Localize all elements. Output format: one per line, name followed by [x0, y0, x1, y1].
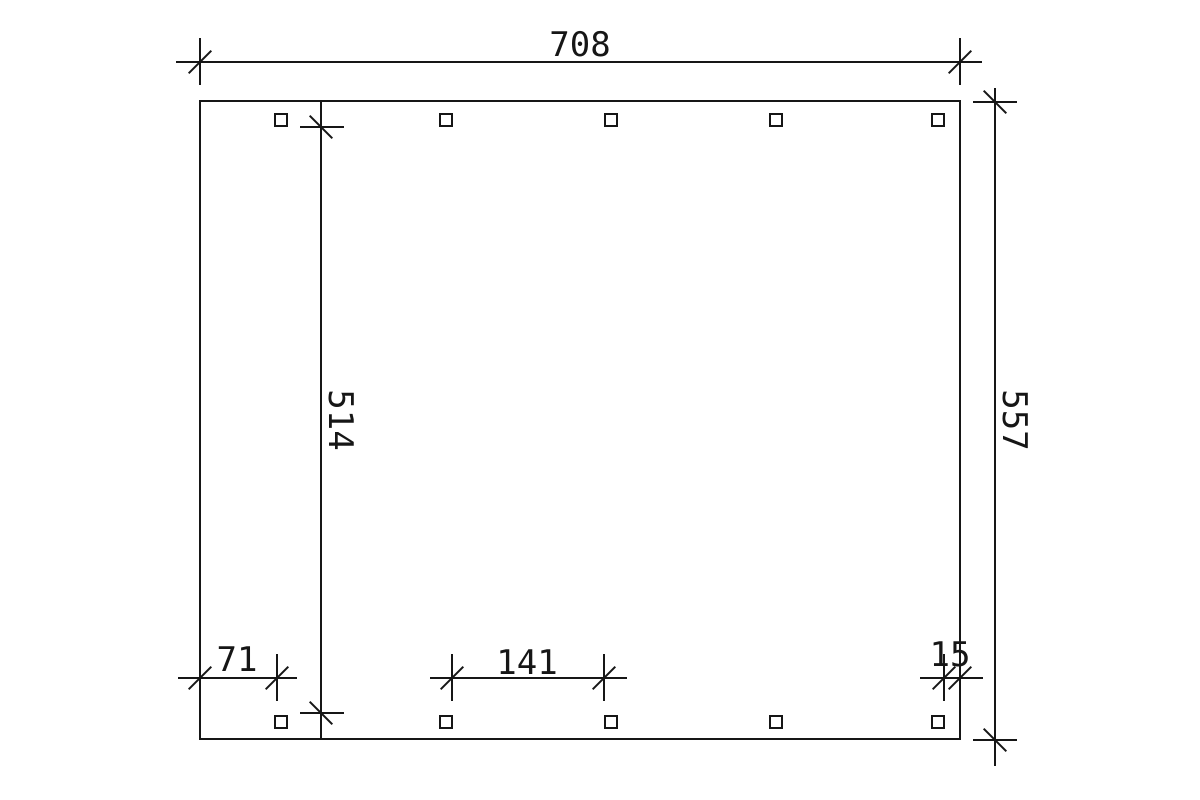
post-marker	[931, 715, 945, 729]
dimension-label-total-width: 708	[549, 28, 610, 62]
plan-outline	[199, 100, 961, 740]
post-marker	[439, 113, 453, 127]
post-marker	[769, 113, 783, 127]
post-marker	[274, 113, 288, 127]
drawing-canvas: 708 557 514 71 141 15	[0, 0, 1200, 800]
post-marker	[604, 715, 618, 729]
dimension-label-total-depth: 557	[997, 389, 1031, 450]
post-marker	[274, 715, 288, 729]
dim-15-line	[920, 677, 983, 679]
dimension-label-inner-depth: 514	[323, 389, 357, 450]
dimension-label-post-clear-spacing: 141	[496, 646, 557, 680]
post-marker	[931, 113, 945, 127]
post-marker	[769, 715, 783, 729]
post-marker	[439, 715, 453, 729]
post-marker	[604, 113, 618, 127]
dimension-label-left-post-offset: 71	[217, 643, 258, 677]
dimension-label-right-post-offset: 15	[930, 638, 971, 672]
